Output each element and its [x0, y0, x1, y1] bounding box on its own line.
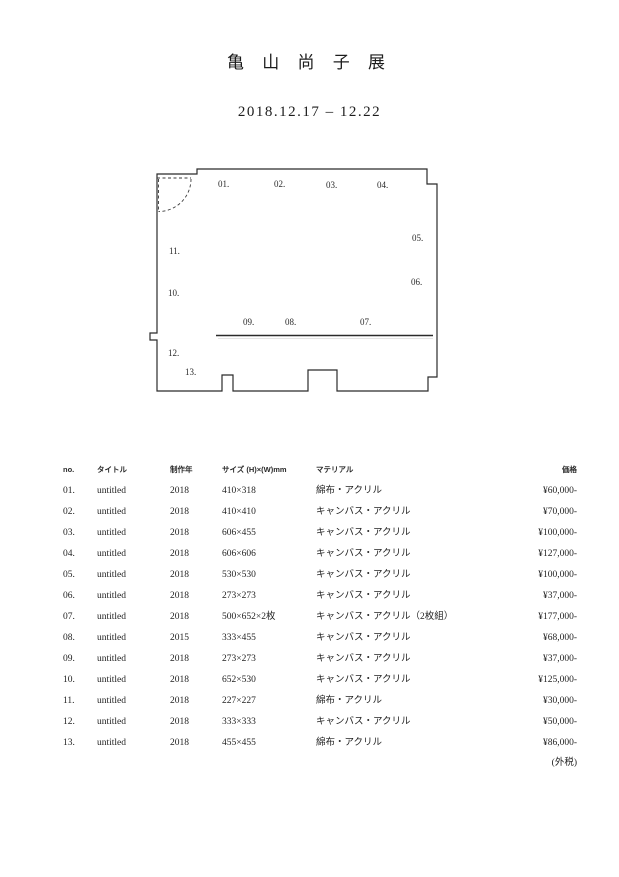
cell-no: 01. [63, 481, 97, 502]
floor-plan-walls [150, 169, 437, 391]
cell-title: untitled [97, 502, 170, 523]
plan-label-01: 01. [218, 179, 229, 189]
cell-title: untitled [97, 544, 170, 565]
exhibition-dates: 2018.12.17 – 12.22 [0, 104, 619, 121]
cell-size: 652×530 [222, 670, 316, 691]
cell-no: 06. [63, 586, 97, 607]
cell-price: ¥70,000- [501, 502, 577, 523]
cell-size: 410×410 [222, 502, 316, 523]
plan-label-13: 13. [185, 367, 196, 377]
cell-size: 606×455 [222, 523, 316, 544]
cell-year: 2018 [170, 691, 222, 712]
cell-no: 11. [63, 691, 97, 712]
cell-size: 333×455 [222, 628, 316, 649]
cell-material: キャンバス・アクリル [316, 502, 501, 523]
cell-material: キャンバス・アクリル [316, 670, 501, 691]
table-row: 02. untitled 2018 410×410 キャンバス・アクリル ¥70… [63, 502, 577, 523]
cell-no: 05. [63, 565, 97, 586]
cell-year: 2018 [170, 502, 222, 523]
header-price: 価格 [501, 458, 577, 481]
cell-no: 02. [63, 502, 97, 523]
table-row: 06. untitled 2018 273×273 キャンバス・アクリル ¥37… [63, 586, 577, 607]
cell-year: 2015 [170, 628, 222, 649]
cell-size: 273×273 [222, 586, 316, 607]
table-row: 13. untitled 2018 455×455 綿布・アクリル ¥86,00… [63, 733, 577, 754]
cell-year: 2018 [170, 712, 222, 733]
cell-title: untitled [97, 691, 170, 712]
cell-no: 07. [63, 607, 97, 628]
table-header-row: no. タイトル 制作年 サイズ (H)×(W)mm マテリアル 価格 [63, 458, 577, 481]
cell-material: キャンバス・アクリル [316, 544, 501, 565]
artwork-price-table: no. タイトル 制作年 サイズ (H)×(W)mm マテリアル 価格 01. … [63, 458, 577, 754]
cell-material: キャンバス・アクリル [316, 649, 501, 670]
cell-size: 606×606 [222, 544, 316, 565]
cell-material: キャンバス・アクリル [316, 628, 501, 649]
cell-title: untitled [97, 712, 170, 733]
plan-label-03: 03. [326, 180, 337, 190]
cell-year: 2018 [170, 481, 222, 502]
cell-material: 綿布・アクリル [316, 691, 501, 712]
cell-price: ¥68,000- [501, 628, 577, 649]
cell-price: ¥177,000- [501, 607, 577, 628]
plan-label-05: 05. [412, 233, 423, 243]
cell-size: 455×455 [222, 733, 316, 754]
plan-label-07: 07. [360, 317, 371, 327]
cell-title: untitled [97, 565, 170, 586]
plan-label-06: 06. [411, 277, 422, 287]
cell-price: ¥37,000- [501, 586, 577, 607]
plan-label-02: 02. [274, 179, 285, 189]
cell-year: 2018 [170, 586, 222, 607]
cell-title: untitled [97, 733, 170, 754]
door-swing-arc [159, 179, 192, 212]
exhibition-price-list-page: { "page": { "title": "亀 山 尚 子 展", "dates… [0, 0, 619, 877]
cell-material: 綿布・アクリル [316, 733, 501, 754]
cell-size: 333×333 [222, 712, 316, 733]
cell-material: 綿布・アクリル [316, 481, 501, 502]
cell-size: 500×652×2枚 [222, 607, 316, 628]
cell-year: 2018 [170, 565, 222, 586]
cell-no: 04. [63, 544, 97, 565]
cell-price: ¥127,000- [501, 544, 577, 565]
cell-title: untitled [97, 649, 170, 670]
header-material: マテリアル [316, 458, 501, 481]
cell-size: 227×227 [222, 691, 316, 712]
cell-price: ¥37,000- [501, 649, 577, 670]
table-row: 08. untitled 2015 333×455 キャンバス・アクリル ¥68… [63, 628, 577, 649]
page-title: 亀 山 尚 子 展 [0, 48, 619, 73]
cell-price: ¥125,000- [501, 670, 577, 691]
table-row: 11. untitled 2018 227×227 綿布・アクリル ¥30,00… [63, 691, 577, 712]
cell-no: 10. [63, 670, 97, 691]
cell-title: untitled [97, 607, 170, 628]
header-title: タイトル [97, 458, 170, 481]
cell-price: ¥100,000- [501, 565, 577, 586]
cell-no: 12. [63, 712, 97, 733]
cell-material: キャンバス・アクリル [316, 586, 501, 607]
cell-year: 2018 [170, 523, 222, 544]
table-row: 09. untitled 2018 273×273 キャンバス・アクリル ¥37… [63, 649, 577, 670]
plan-label-10: 10. [168, 288, 179, 298]
cell-no: 13. [63, 733, 97, 754]
cell-title: untitled [97, 628, 170, 649]
cell-no: 03. [63, 523, 97, 544]
table-row: 07. untitled 2018 500×652×2枚 キャンバス・アクリル（… [63, 607, 577, 628]
plan-label-04: 04. [377, 180, 388, 190]
cell-material: キャンバス・アクリル（2枚組） [316, 607, 501, 628]
plan-label-09: 09. [243, 317, 254, 327]
cell-size: 273×273 [222, 649, 316, 670]
table-row: 10. untitled 2018 652×530 キャンバス・アクリル ¥12… [63, 670, 577, 691]
plan-label-11: 11. [169, 246, 180, 256]
header-year: 制作年 [170, 458, 222, 481]
table-row: 04. untitled 2018 606×606 キャンバス・アクリル ¥12… [63, 544, 577, 565]
cell-price: ¥60,000- [501, 481, 577, 502]
cell-no: 09. [63, 649, 97, 670]
cell-price: ¥30,000- [501, 691, 577, 712]
table-row: 01. untitled 2018 410×318 綿布・アクリル ¥60,00… [63, 481, 577, 502]
cell-size: 410×318 [222, 481, 316, 502]
plan-label-12: 12. [168, 348, 179, 358]
table-row: 12. untitled 2018 333×333 キャンバス・アクリル ¥50… [63, 712, 577, 733]
header-no: no. [63, 458, 97, 481]
cell-title: untitled [97, 481, 170, 502]
cell-price: ¥86,000- [501, 733, 577, 754]
cell-material: キャンバス・アクリル [316, 565, 501, 586]
floor-plan-drawing [140, 155, 450, 400]
cell-price: ¥100,000- [501, 523, 577, 544]
table-row: 05. untitled 2018 530×530 キャンバス・アクリル ¥10… [63, 565, 577, 586]
tax-note: (外税) [63, 753, 577, 774]
cell-year: 2018 [170, 670, 222, 691]
plan-label-08: 08. [285, 317, 296, 327]
cell-year: 2018 [170, 607, 222, 628]
table-row: 03. untitled 2018 606×455 キャンバス・アクリル ¥10… [63, 523, 577, 544]
cell-title: untitled [97, 523, 170, 544]
cell-title: untitled [97, 586, 170, 607]
cell-price: ¥50,000- [501, 712, 577, 733]
cell-year: 2018 [170, 733, 222, 754]
cell-material: キャンバス・アクリル [316, 712, 501, 733]
cell-title: untitled [97, 670, 170, 691]
cell-material: キャンバス・アクリル [316, 523, 501, 544]
cell-year: 2018 [170, 544, 222, 565]
cell-size: 530×530 [222, 565, 316, 586]
cell-year: 2018 [170, 649, 222, 670]
header-size: サイズ (H)×(W)mm [222, 458, 316, 481]
cell-no: 08. [63, 628, 97, 649]
